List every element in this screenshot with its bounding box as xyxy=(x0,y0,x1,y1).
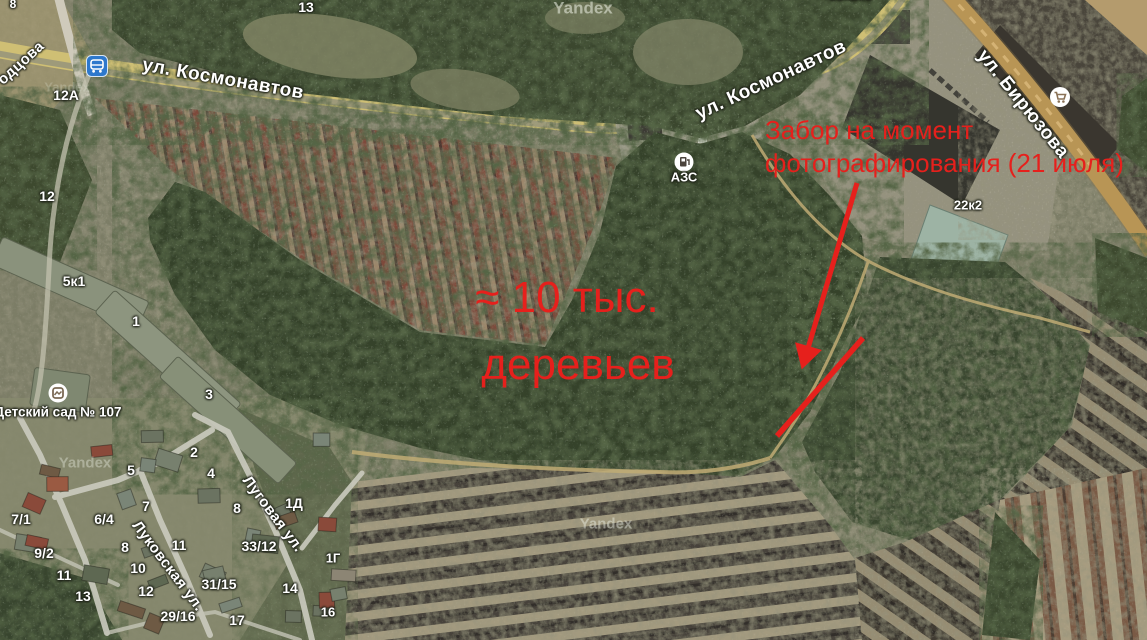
yandex-watermark: Yandex xyxy=(580,517,633,532)
kindergarten-label: Детский сад № 107 xyxy=(0,405,121,419)
house xyxy=(198,488,220,503)
house-number: 7 xyxy=(142,499,150,513)
house-number: 4 xyxy=(207,466,215,480)
house xyxy=(47,477,69,492)
house-number: 33/12 xyxy=(241,539,276,553)
annotation-trees-line2: деревьев xyxy=(481,343,674,387)
house-number: 22к202 xyxy=(830,0,873,2)
house-number: 1 xyxy=(132,314,140,328)
house-number: 13 xyxy=(75,589,91,603)
house-number: 5к1 xyxy=(63,274,86,288)
house-number: 6/4 xyxy=(94,512,113,526)
shopping-cart-icon[interactable] xyxy=(1050,87,1071,108)
garage-rows-south xyxy=(345,460,862,640)
house-number: 11 xyxy=(172,538,187,552)
house-number: 29/16 xyxy=(160,609,195,623)
house-number: 11 xyxy=(57,568,72,582)
house-number: 1Д xyxy=(285,496,303,510)
house-number: 22к2 xyxy=(954,199,982,212)
house xyxy=(313,433,330,446)
house-number: 12 xyxy=(39,189,55,203)
yandex-watermark: Yandex xyxy=(553,0,613,17)
gas-station-label: АЗС xyxy=(671,171,698,184)
house-number: 3 xyxy=(205,387,213,401)
annotation-fence-line1: Забор на момент xyxy=(765,117,973,143)
house-number: 8 xyxy=(10,0,17,10)
house-number: 12 xyxy=(138,584,154,598)
house-number: 9/2 xyxy=(34,546,53,560)
house-number: 31/15 xyxy=(201,577,236,591)
yandex-watermark: Yandex xyxy=(59,456,112,471)
annotation-fence-line2: фотографирования (21 июля) xyxy=(765,150,1124,176)
house xyxy=(285,611,301,623)
house-number: 1Г xyxy=(326,552,341,565)
house xyxy=(141,430,163,442)
kindergarten-icon[interactable] xyxy=(48,383,68,403)
house-number: 16 xyxy=(321,606,335,619)
house xyxy=(318,517,337,532)
house-number: 17 xyxy=(229,613,245,627)
satellite-map[interactable]: одцоваул. Космонавтовул. Космонавтовул. … xyxy=(0,0,1147,640)
house-number: 13 xyxy=(298,0,314,14)
house-number: 7/1 xyxy=(11,512,30,526)
house xyxy=(140,458,156,473)
bus-stop-icon[interactable] xyxy=(86,55,108,77)
house-number: 8 xyxy=(121,540,129,554)
car xyxy=(698,138,707,143)
house-number: 10 xyxy=(130,561,146,575)
house xyxy=(331,569,356,582)
house xyxy=(330,587,347,602)
house-number: 8 xyxy=(233,501,241,515)
clearing xyxy=(633,19,743,85)
house-number: 5 xyxy=(127,463,135,477)
house-number: 14 xyxy=(282,581,298,595)
annotation-trees-line1: ≈ 10 тыс. xyxy=(475,276,659,320)
yandex-watermark: Yandex xyxy=(44,81,90,94)
house-number: 2 xyxy=(190,445,198,459)
